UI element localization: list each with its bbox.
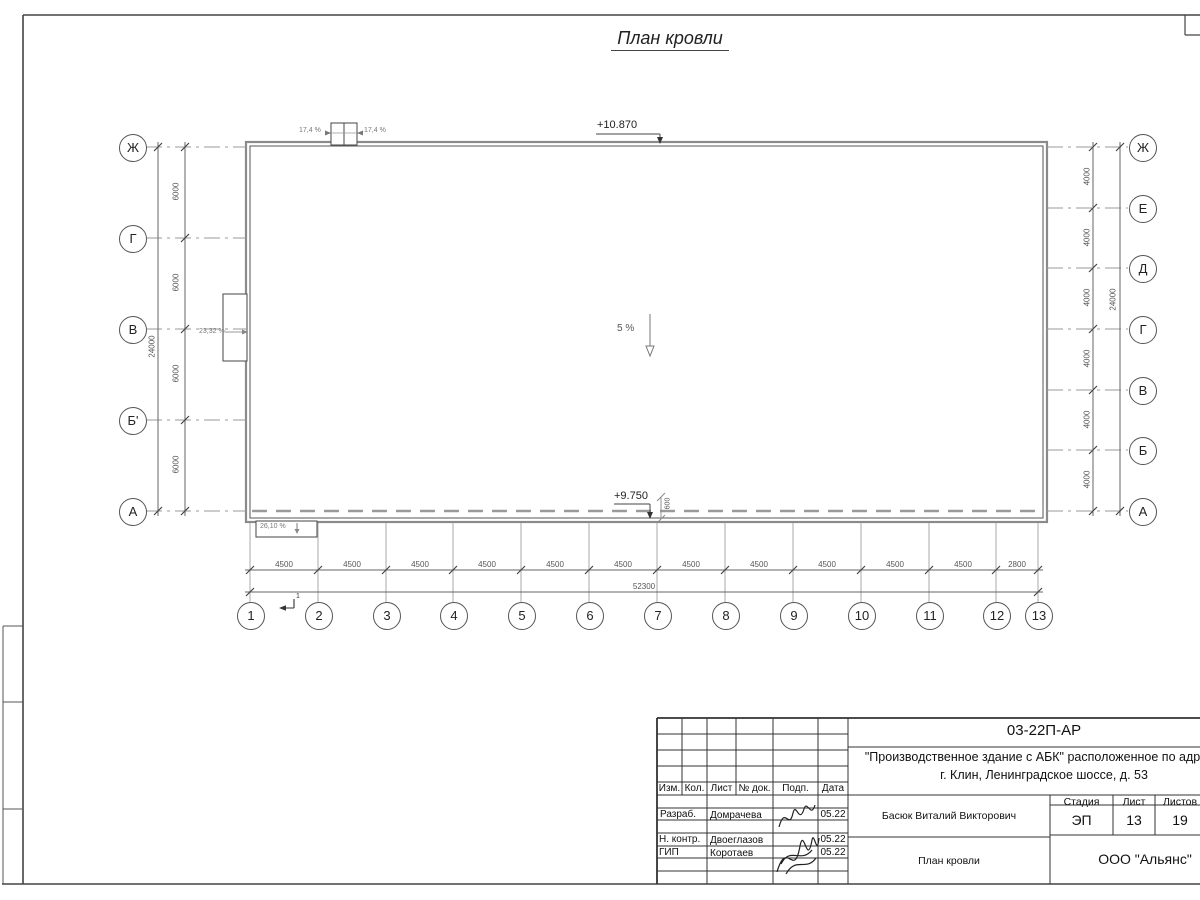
doc-code: 03-22П-АР [848,722,1200,739]
tb-col-list: Лист [707,783,736,794]
axis-circle-bottom: 13 [1025,602,1053,630]
dim-label: 4500 [875,560,915,569]
tb-col-izm: Изм. [657,783,682,794]
dim-label: 4500 [332,560,372,569]
roof-vent [325,123,363,145]
axis-circle-left: Ж [119,134,147,162]
tb-name: Коротаев [710,848,753,859]
dim-label: 4500 [671,560,711,569]
axis-circle-right: В [1129,377,1157,405]
dim-label: 4000 [1083,273,1092,323]
dim-label: 6000 [172,349,181,399]
dim-label: 6000 [172,440,181,490]
signatures [777,805,819,874]
tb-sheets-label: Листов [1155,796,1200,808]
tb-sheet-label: Лист [1113,796,1155,808]
tb-stage-label: Стадия [1050,796,1113,808]
dim-total-label: 52300 [609,582,679,591]
dim-label: 4500 [943,560,983,569]
dim-label: 4500 [400,560,440,569]
slope-bottom-canopy-label: 26,10 % [260,523,286,530]
section-mark [279,599,294,611]
dim-label: 6000 [172,258,181,308]
dim-label: 4500 [807,560,847,569]
tb-col-ndok: № док. [736,783,773,794]
dim-label: 4500 [264,560,304,569]
parapet-dim-label: 600 [665,484,672,524]
dim-label: 4500 [603,560,643,569]
dim-label: 4000 [1083,213,1092,263]
elevation-top-label: +10.870 [597,119,637,131]
tb-role: ГИП [659,847,679,858]
axis-circle-right: Д [1129,255,1157,283]
tb-approver: Басюк Виталий Викторович [848,810,1050,822]
dim-label: 4000 [1083,152,1092,202]
dim-label: 4500 [739,560,779,569]
axis-circle-left: А [119,498,147,526]
left-canopy [223,294,248,361]
drawing-sheet: План кровли +10.870 +9.750 600 5 % 17,4 … [0,0,1200,900]
axis-circle-bottom: 10 [848,602,876,630]
axis-circle-bottom: 3 [373,602,401,630]
tb-role: Н. контр. [659,834,700,845]
axis-circle-bottom: 11 [916,602,944,630]
tb-role: Разраб. [660,809,696,820]
axis-circle-bottom: 1 [237,602,265,630]
section-mark-label: 1 [296,593,300,600]
axis-circle-left: Б' [119,407,147,435]
axis-lines [146,147,1128,511]
elevation-bottom-label: +9.750 [614,490,648,502]
axis-circle-left: Г [119,225,147,253]
page-title-text: План кровли [611,28,729,51]
tb-stage-value: ЭП [1050,812,1113,828]
slope-vent-left-label: 17,4 % [299,127,321,134]
slope-vent-right-label: 17,4 % [364,127,386,134]
tb-sheet-title: План кровли [848,855,1050,867]
dim-total-label: 24000 [148,322,157,372]
page-title: План кровли [450,28,890,49]
axis-circle-bottom: 9 [780,602,808,630]
dim-label: 4000 [1083,334,1092,384]
tb-name: Домрачева [710,810,762,821]
axis-circle-bottom: 8 [712,602,740,630]
tb-col-podp: Подп. [773,783,818,794]
axis-circle-bottom: 5 [508,602,536,630]
project-name-line2: г. Клин, Ленинградское шоссе, д. 53 [848,768,1200,782]
slope-arrow [646,314,654,356]
tb-col-kol: Кол. [682,783,707,794]
building-outline [246,142,1047,522]
dim-label: 4500 [467,560,507,569]
slope-main-label: 5 % [617,323,634,334]
tb-date: 05.22 [818,834,848,845]
axis-circle-bottom: 6 [576,602,604,630]
axis-circle-right: А [1129,498,1157,526]
dim-label: 6000 [172,167,181,217]
axis-circle-bottom: 2 [305,602,333,630]
axis-circle-right: Е [1129,195,1157,223]
tb-sheet-value: 13 [1113,812,1155,828]
axis-circle-right: Ж [1129,134,1157,162]
axis-circle-right: Б [1129,437,1157,465]
tb-col-data: Дата [818,783,848,794]
tb-company: ООО "Альянс" [1050,851,1200,867]
axis-circle-bottom: 7 [644,602,672,630]
axis-circle-left: В [119,316,147,344]
slope-left-canopy-label: 23,32 % [199,328,225,335]
dim-label: 4000 [1083,395,1092,445]
project-name-line1: "Производственное здание с АБК" располож… [848,750,1200,764]
axis-circle-bottom: 12 [983,602,1011,630]
dim-total-label: 24000 [1109,275,1118,325]
axis-circle-right: Г [1129,316,1157,344]
tb-name: Двоеглазов [710,835,763,846]
dim-label: 4000 [1083,455,1092,505]
tb-date: 05.22 [818,809,848,820]
tb-date: 05.22 [818,847,848,858]
dim-label: 2800 [997,560,1037,569]
tb-sheets-value: 19 [1155,812,1200,828]
dim-label: 4500 [535,560,575,569]
axis-circle-bottom: 4 [440,602,468,630]
